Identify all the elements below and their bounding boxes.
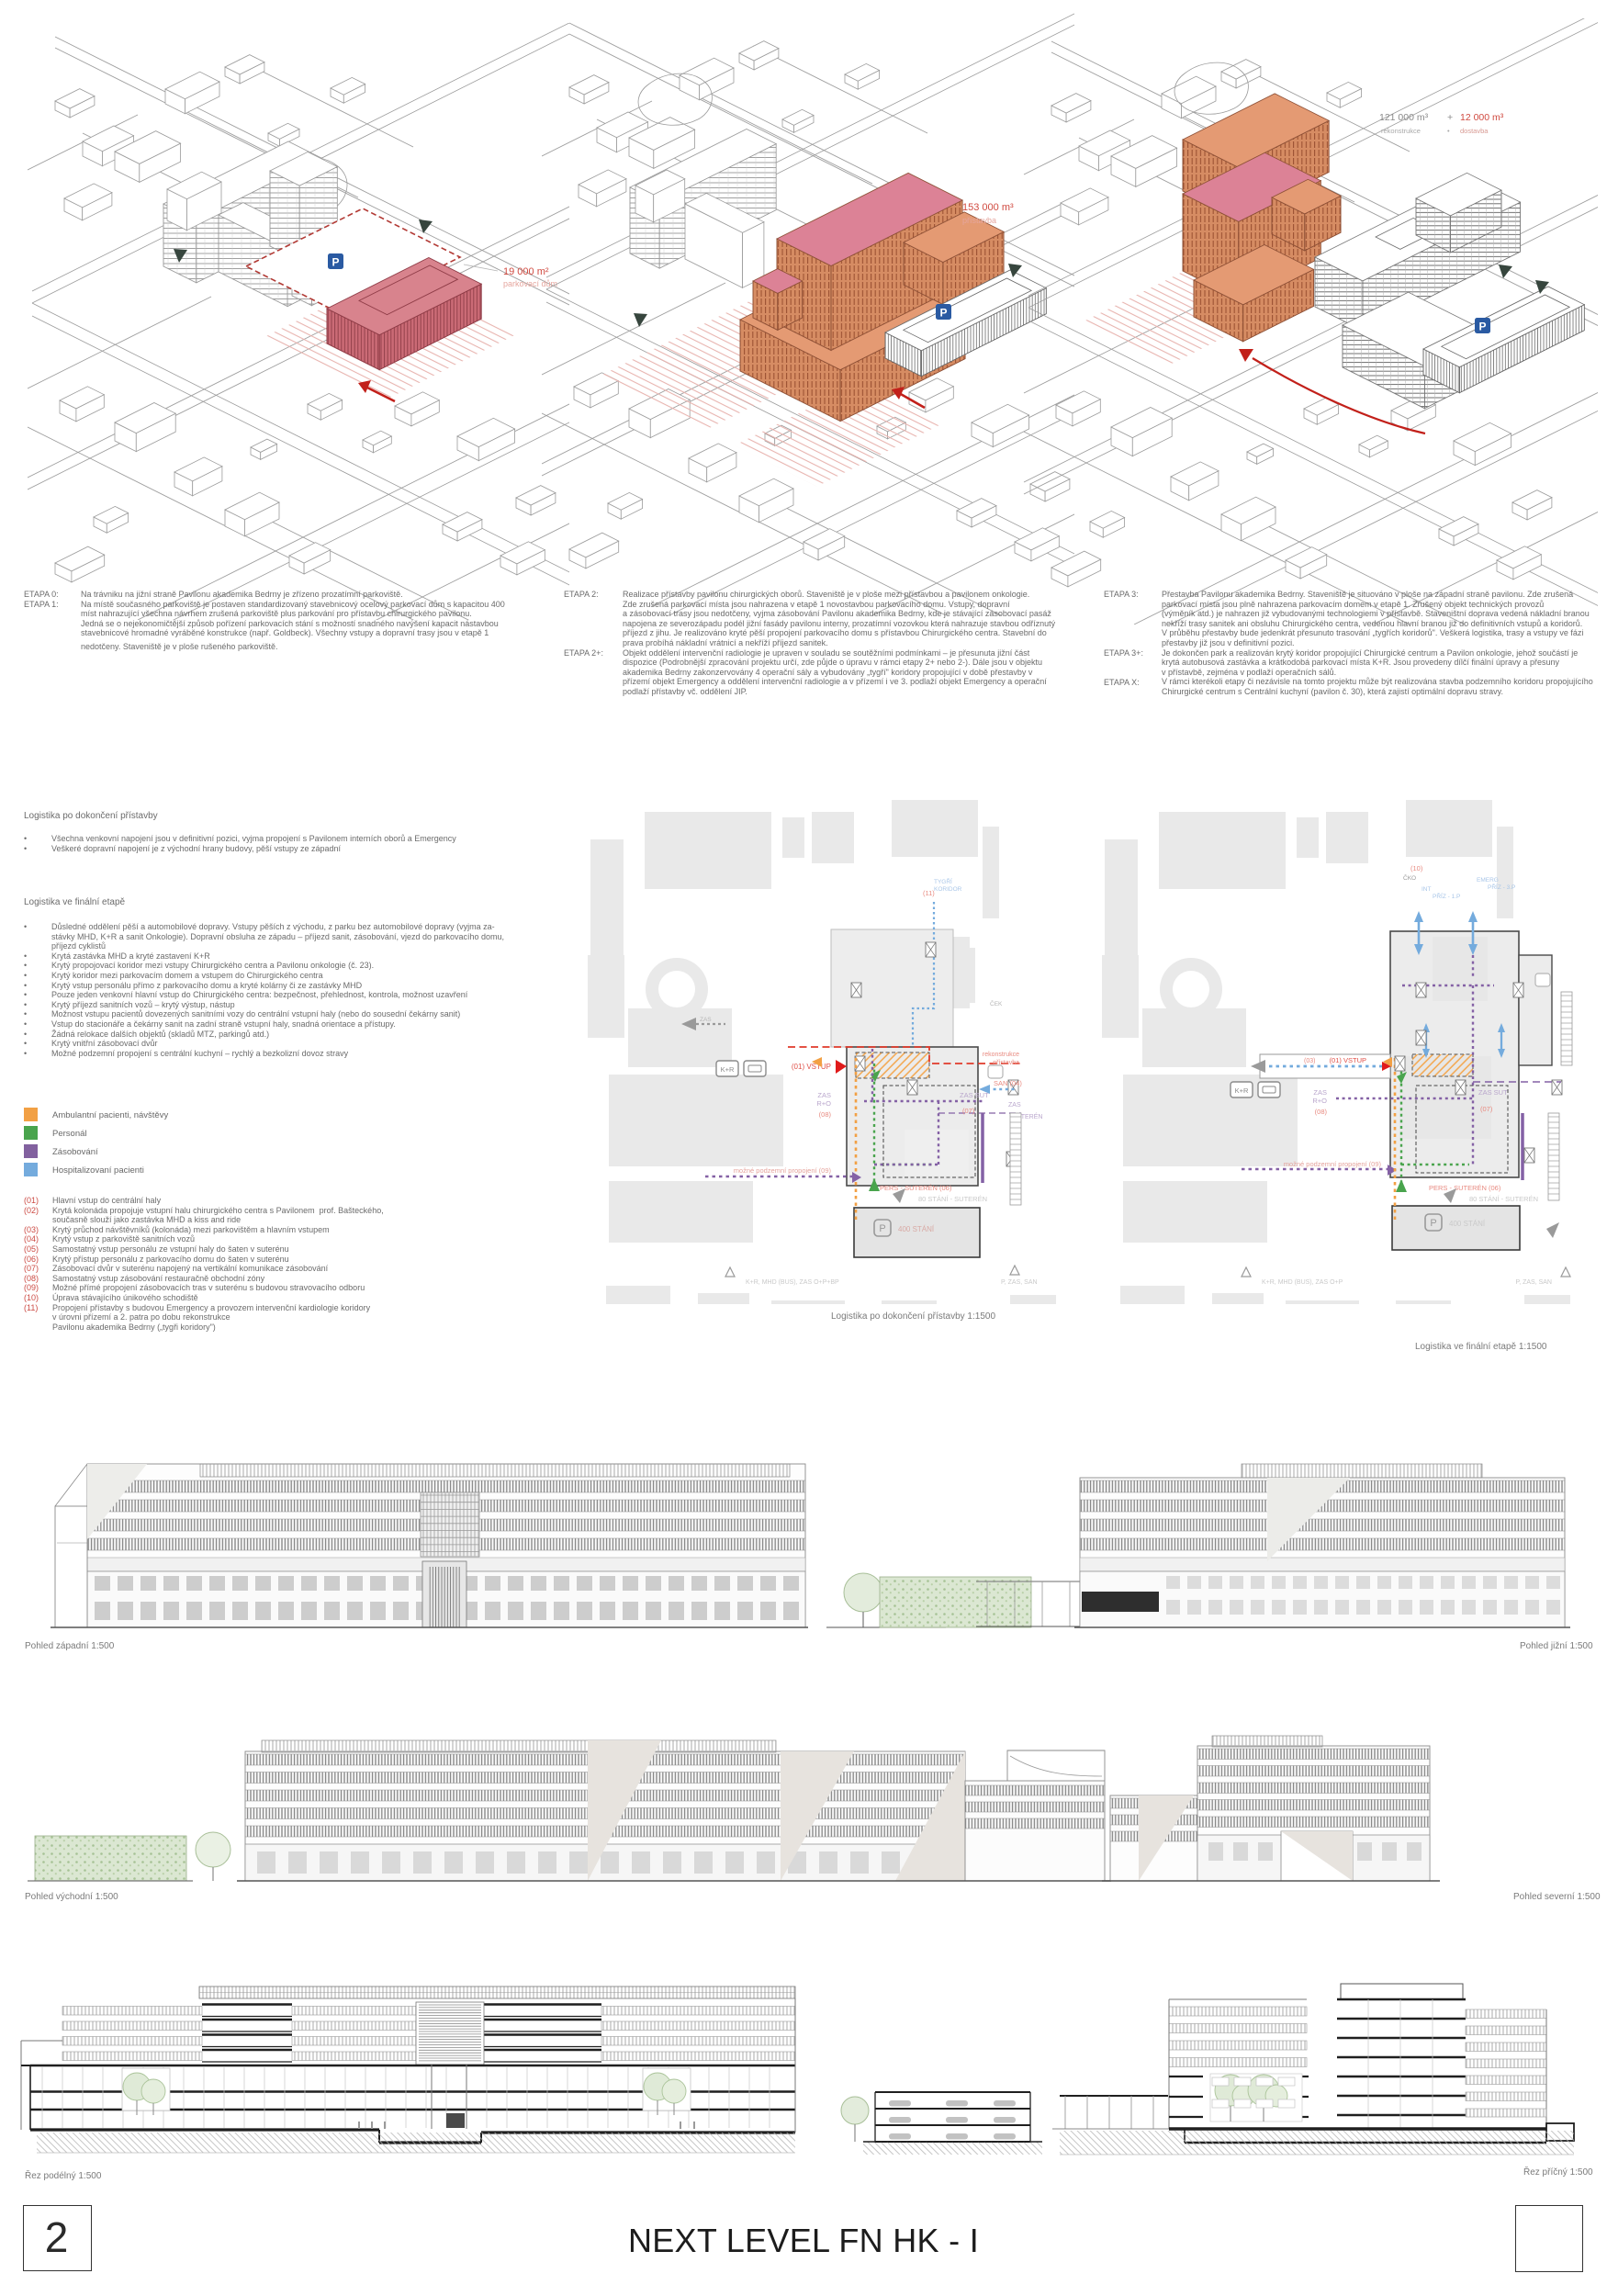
svg-text:(01) VSTUP: (01) VSTUP — [1330, 1056, 1366, 1064]
svg-text:P: P — [1478, 321, 1486, 333]
svg-text:K+R: K+R — [1235, 1086, 1249, 1095]
svg-text:80 STÁNÍ - SUTERÉN: 80 STÁNÍ - SUTERÉN — [1469, 1195, 1538, 1203]
svg-text:dostavba: dostavba — [1460, 127, 1489, 135]
svg-text:ČKO: ČKO — [1403, 873, 1416, 882]
svg-text:P: P — [879, 1223, 885, 1234]
svg-text:R+O: R+O — [1312, 1097, 1327, 1105]
svg-text:EMERG: EMERG — [1477, 877, 1499, 884]
svg-text:400 STÁNÍ: 400 STÁNÍ — [1449, 1220, 1486, 1228]
svg-text:ZAS: ZAS — [1008, 1102, 1021, 1109]
svg-text:R+O: R+O — [816, 1099, 831, 1108]
svg-text:P, ZAS, SAN: P, ZAS, SAN — [1001, 1279, 1038, 1286]
svg-text:ZAS SUT: ZAS SUT — [960, 1091, 989, 1099]
svg-text:rekonstrukce: rekonstrukce — [1381, 127, 1421, 135]
svg-text:ZAS: ZAS — [817, 1091, 831, 1099]
svg-text:400 STÁNÍ: 400 STÁNÍ — [898, 1225, 935, 1233]
svg-text:P: P — [332, 256, 339, 269]
svg-text:TYGŘÍ: TYGŘÍ — [934, 877, 952, 885]
svg-text:P, ZAS, SAN: P, ZAS, SAN — [1515, 1279, 1552, 1286]
svg-text:INT: INT — [1422, 886, 1432, 893]
svg-text:80 STÁNÍ - SUTERÉN: 80 STÁNÍ - SUTERÉN — [918, 1195, 987, 1203]
svg-text:•: • — [1447, 127, 1450, 135]
svg-text:153 000 m³: 153 000 m³ — [962, 202, 1014, 213]
svg-text:(08): (08) — [819, 1110, 832, 1119]
svg-text:P: P — [1430, 1218, 1436, 1229]
svg-text:K+R, MHD (BUS), ZAS O+P+BP: K+R, MHD (BUS), ZAS O+P+BP — [746, 1279, 839, 1286]
svg-text:121 000 m³: 121 000 m³ — [1379, 112, 1429, 123]
svg-text:(01) VSTUP: (01) VSTUP — [792, 1063, 831, 1071]
svg-text:ZAS SUT: ZAS SUT — [1478, 1088, 1508, 1097]
svg-text:ZAS: ZAS — [700, 1017, 712, 1023]
svg-text:PERS - SUTERÉN (06): PERS - SUTERÉN (06) — [1429, 1184, 1501, 1192]
svg-text:ZAS: ZAS — [1313, 1088, 1327, 1097]
svg-text:K+R, MHD (BUS), ZAS O+P: K+R, MHD (BUS), ZAS O+P — [1262, 1279, 1343, 1286]
svg-text:12 000 m³: 12 000 m³ — [1460, 112, 1504, 123]
svg-text:(10): (10) — [1410, 864, 1423, 872]
svg-text:ČEK: ČEK — [990, 999, 1003, 1007]
svg-text:možné podzemní propojení (09): možné podzemní propojení (09) — [734, 1166, 832, 1175]
svg-text:(07): (07) — [1480, 1105, 1493, 1113]
svg-text:K+R: K+R — [721, 1065, 735, 1074]
svg-text:(07): (07) — [962, 1107, 975, 1115]
svg-text:(03): (03) — [1304, 1058, 1315, 1064]
svg-text:(08): (08) — [1315, 1108, 1328, 1116]
svg-text:+: + — [1447, 112, 1453, 123]
svg-text:rekonstrukce: rekonstrukce — [983, 1052, 1019, 1058]
svg-text:KORIDOR: KORIDOR — [934, 886, 962, 893]
svg-text:PERS - SUTERÉN (06): PERS - SUTERÉN (06) — [880, 1184, 952, 1192]
svg-text:PŘÍZ - 1.P: PŘÍZ - 1.P — [1433, 892, 1460, 900]
svg-text:P: P — [939, 307, 947, 320]
svg-text:PŘÍZ - 3.P: PŘÍZ - 3.P — [1488, 883, 1515, 891]
svg-text:SAN (04): SAN (04) — [994, 1079, 1022, 1087]
svg-text:přístavba: přístavba — [962, 216, 996, 225]
svg-text:možné podzemní propojení (09): možné podzemní propojení (09) — [1284, 1160, 1382, 1168]
